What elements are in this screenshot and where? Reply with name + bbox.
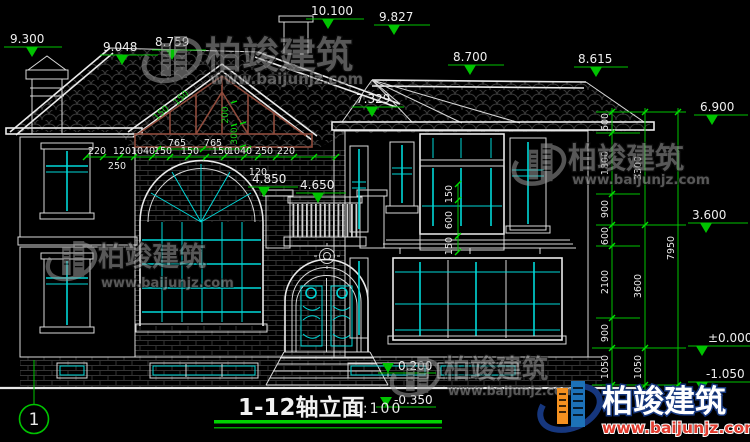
marker-3600: 3.600	[688, 208, 748, 233]
dim-label: 1050	[633, 355, 644, 379]
dim-label: 250	[255, 146, 273, 157]
axis-number: 1	[29, 410, 40, 430]
dim-label: 1040	[131, 146, 155, 157]
dim-label: 900	[600, 200, 611, 218]
title-underline-thick	[214, 420, 442, 424]
watermark-right: 柏竣建筑 www.baijunjz.com	[508, 139, 709, 190]
brand-site: www.baijunjz.com	[602, 419, 750, 437]
marker-8700: 8.700	[448, 50, 504, 75]
marker-6900: 6.900	[694, 100, 748, 125]
dim-label: 200	[221, 106, 231, 123]
elevation-label: 7.329	[356, 92, 390, 106]
elevation-label: 9.300	[10, 32, 44, 46]
elevation-label: 3.600	[692, 208, 726, 222]
drawing-scale: 1:100	[352, 401, 402, 417]
elevation-label: 4.850	[252, 172, 286, 186]
dim-label: 7950	[666, 236, 677, 260]
elevation-label: 6.900	[700, 100, 734, 114]
elevation-drawing: 220 120 1040 150 150 150 1040 250 220 76…	[0, 0, 750, 442]
elevation-label: 9.827	[379, 10, 413, 24]
brand-name: 柏竣建筑	[444, 354, 548, 385]
dim-label: 765	[204, 138, 222, 149]
elevation-label: 10.100	[311, 4, 353, 18]
dim-label: 300	[230, 127, 240, 144]
elevation-label: 4.650	[300, 178, 334, 192]
drawing-title: 1-12轴立面	[238, 394, 365, 421]
cad-elevation-canvas: 220 120 1040 150 150 150 1040 250 220 76…	[0, 0, 750, 442]
brand-site: www.baijunjz.com	[448, 383, 576, 398]
brand-site: www.baijunjz.com	[210, 70, 363, 88]
marker-zero: ±0.000	[688, 331, 750, 356]
dim-label: 150	[444, 185, 455, 203]
left-upper-window	[40, 143, 94, 219]
elevation-label: 8.615	[578, 52, 612, 66]
marker-8615: 8.615	[574, 52, 628, 77]
marker-9827: 9.827	[374, 10, 430, 35]
dim-label: 220	[88, 146, 106, 157]
dim-label: 150	[444, 237, 455, 255]
brand-site: www.baijunjz.com	[101, 276, 234, 291]
dim-label: 1050	[600, 355, 611, 379]
awning	[380, 240, 576, 254]
right-lower-windows	[350, 258, 566, 344]
dim-label: 220	[277, 146, 295, 157]
dim-label: 900	[600, 324, 611, 342]
dim-label: 250	[108, 161, 126, 172]
dim-label: 600	[444, 211, 455, 229]
title-underline-thin	[214, 427, 442, 429]
elevation-label: -1.050	[706, 367, 745, 381]
dim-label: 120	[113, 146, 131, 157]
elevation-label: ±0.000	[708, 331, 750, 345]
dim-label: 765	[168, 138, 186, 149]
elevation-label: 9.048	[103, 40, 137, 54]
dim-label: 2100	[600, 270, 611, 294]
brand-name: 柏竣建筑	[98, 241, 206, 273]
dim-label: 3600	[633, 274, 644, 298]
marker-10100: 10.100	[306, 4, 364, 29]
elevation-label: 8.700	[453, 50, 487, 64]
bay-window-dimensions: 150 600 150	[444, 181, 461, 255]
dim-label: 600	[600, 227, 611, 245]
brand-logo-icon	[508, 139, 569, 190]
dim-label: 1040	[228, 146, 252, 157]
marker-9300: 9.300	[4, 32, 62, 57]
brand-name: 柏竣建筑	[602, 384, 726, 420]
dim-label: 600	[600, 113, 611, 131]
brand-site: www.baijunjz.com	[572, 172, 710, 188]
brand-name: 柏竣建筑	[568, 141, 684, 175]
